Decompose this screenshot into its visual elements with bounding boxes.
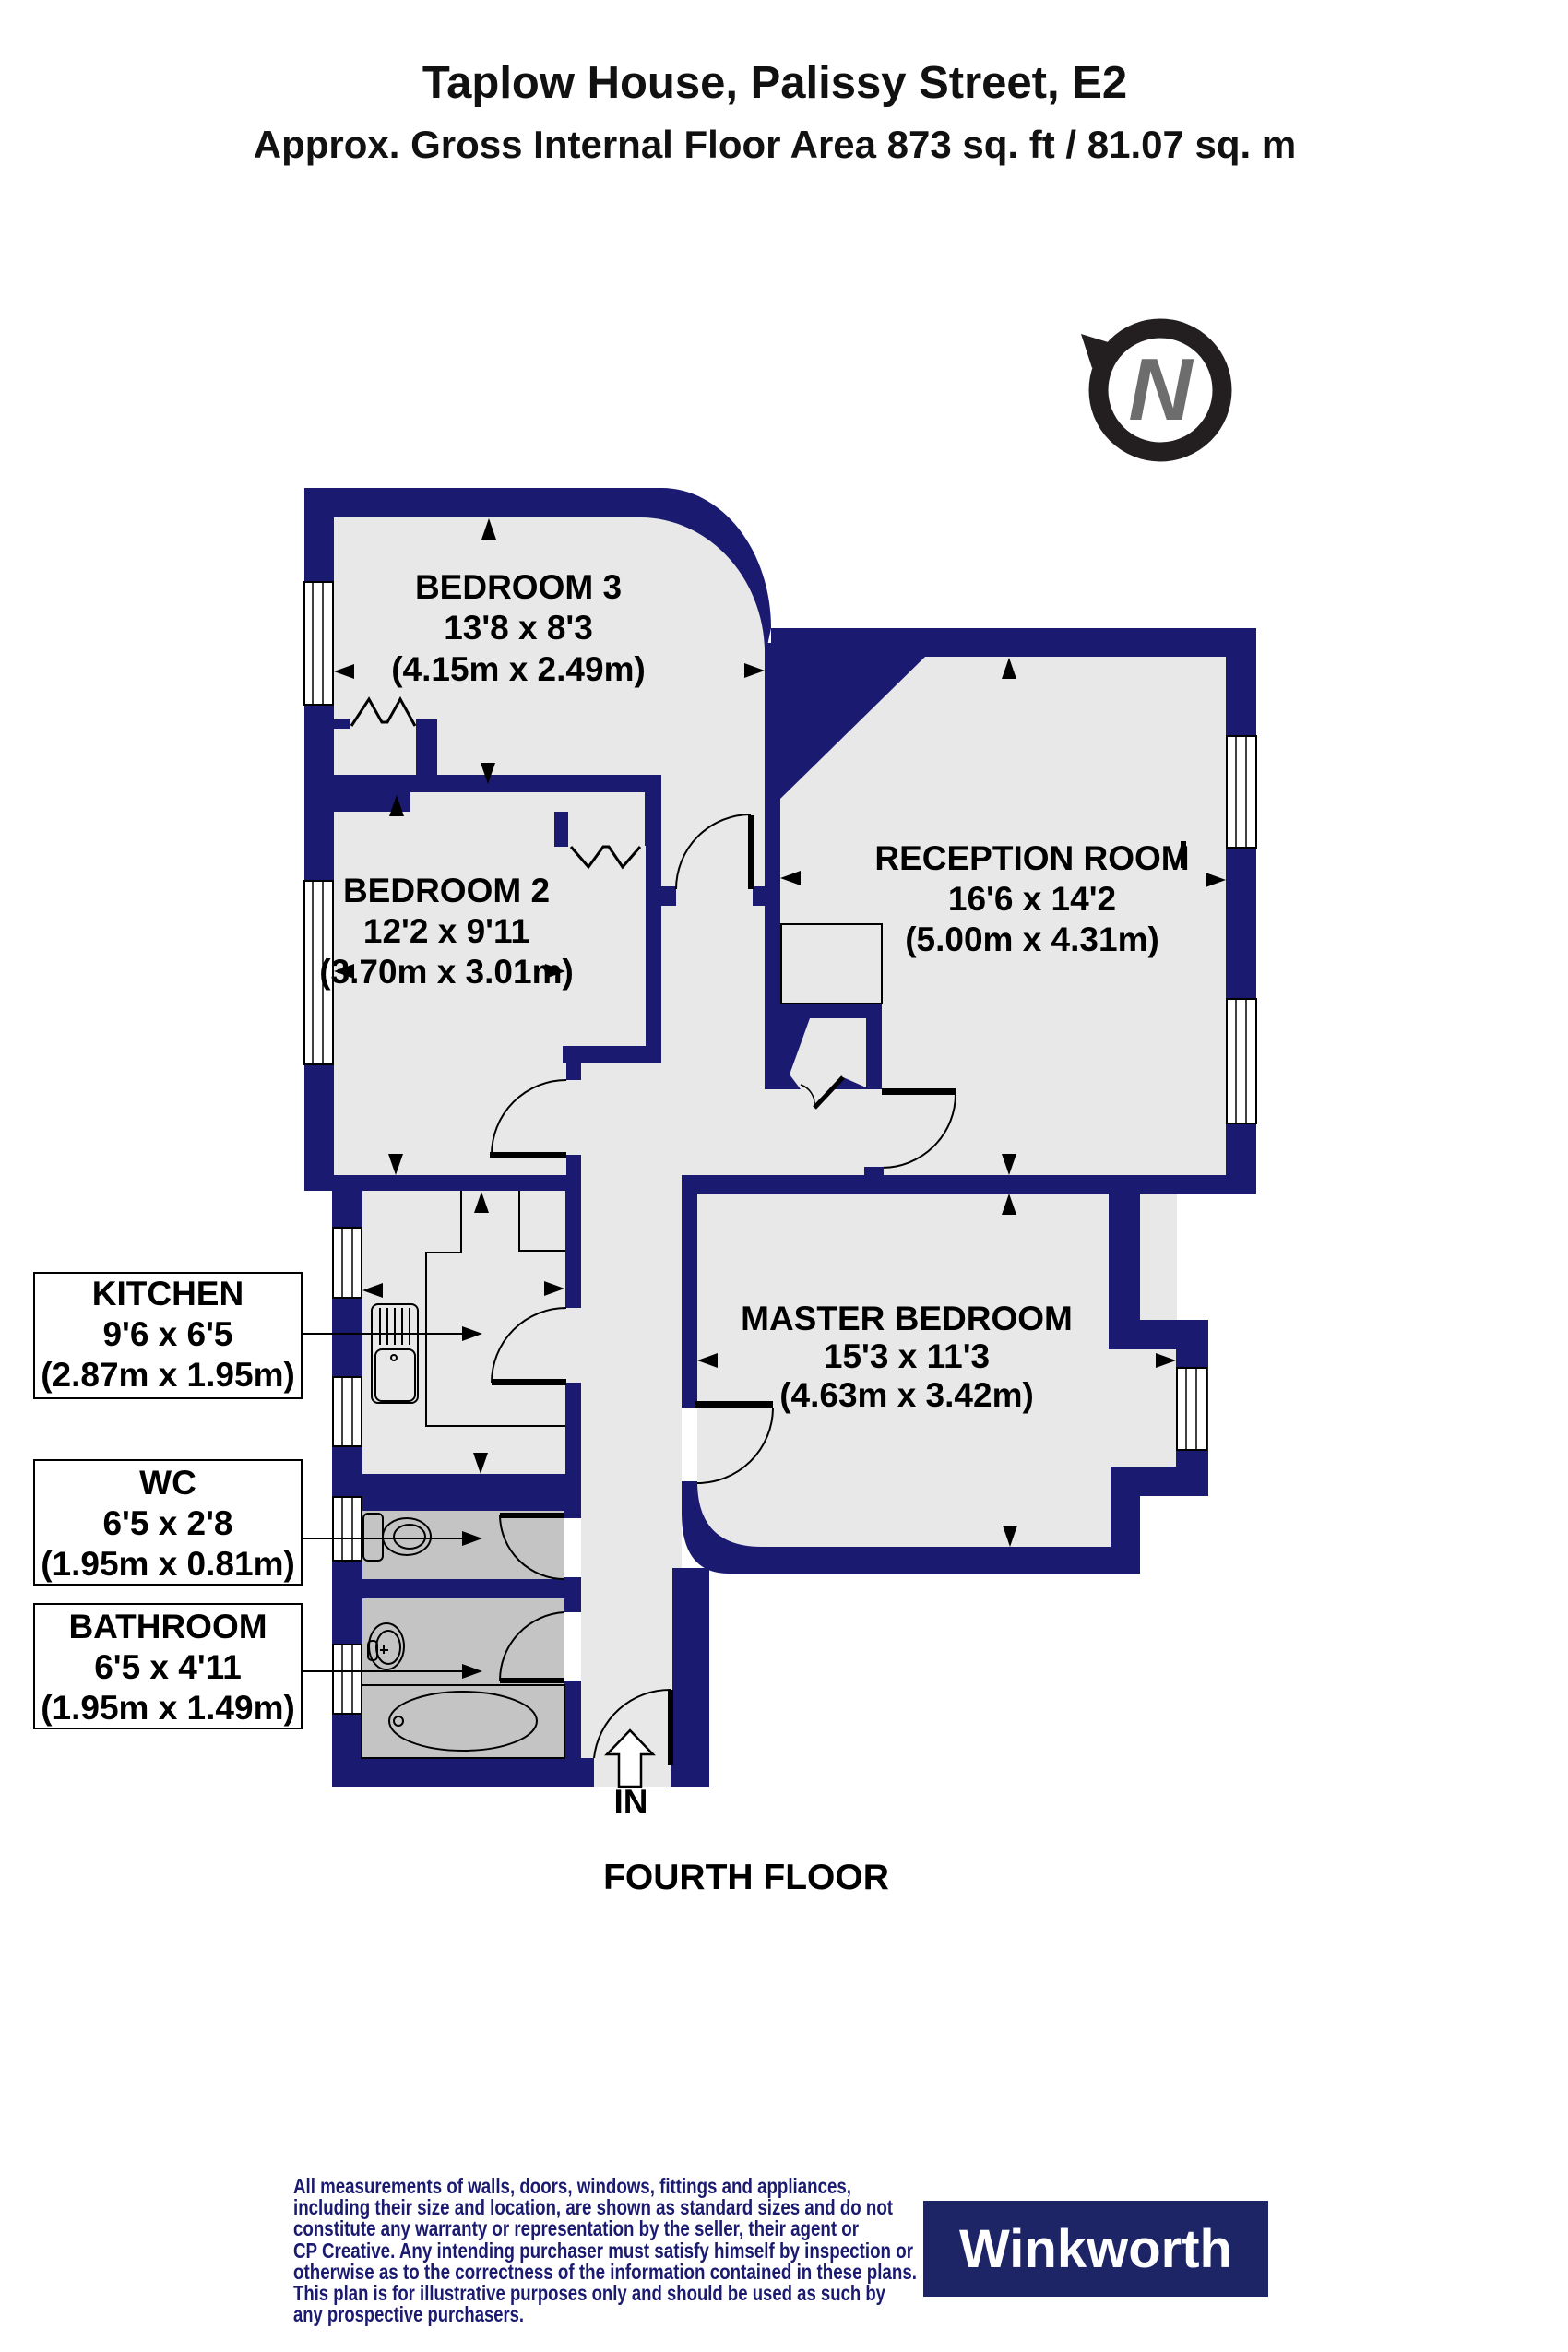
svg-text:Approx. Gross Internal Floor A: Approx. Gross Internal Floor Area 873 sq…: [254, 123, 1296, 166]
svg-text:Winkworth: Winkworth: [959, 2219, 1232, 2279]
svg-text:IN: IN: [614, 1783, 648, 1821]
svg-text:13'8 x 8'3: 13'8 x 8'3: [444, 609, 593, 647]
svg-text:WC: WC: [139, 1464, 196, 1502]
svg-text:12'2 x 9'11: 12'2 x 9'11: [363, 912, 529, 950]
svg-text:BEDROOM 2: BEDROOM 2: [343, 872, 550, 909]
svg-text:Taplow House, Palissy Street,: Taplow House, Palissy Street, E2: [422, 58, 1127, 108]
svg-text:any prospective purchasers.: any prospective purchasers.: [293, 2302, 524, 2326]
svg-text:(4.63m x 3.42m): (4.63m x 3.42m): [779, 1376, 1034, 1414]
svg-text:(2.87m x 1.95m): (2.87m x 1.95m): [41, 1356, 295, 1394]
svg-text:constitute any warranty or rep: constitute any warranty or representatio…: [293, 2216, 859, 2240]
svg-text:16'6 x 14'2: 16'6 x 14'2: [948, 880, 1116, 918]
svg-text:FOURTH FLOOR: FOURTH FLOOR: [603, 1858, 889, 1897]
svg-text:6'5 x 2'8: 6'5 x 2'8: [102, 1504, 232, 1542]
svg-text:BATHROOM: BATHROOM: [68, 1608, 267, 1645]
svg-text:(3.70m x 3.01m): (3.70m x 3.01m): [319, 953, 574, 991]
svg-text:N: N: [1128, 340, 1194, 439]
svg-text:6'5 x 4'11: 6'5 x 4'11: [94, 1648, 242, 1686]
svg-text:(1.95m x 0.81m): (1.95m x 0.81m): [41, 1545, 295, 1583]
svg-text:(1.95m x 1.49m): (1.95m x 1.49m): [41, 1689, 295, 1727]
svg-text:9'6 x 6'5: 9'6 x 6'5: [102, 1315, 232, 1353]
svg-text:KITCHEN: KITCHEN: [92, 1275, 244, 1313]
svg-text:MASTER BEDROOM: MASTER BEDROOM: [741, 1300, 1073, 1337]
svg-text:15'3 x 11'3: 15'3 x 11'3: [824, 1337, 990, 1375]
svg-text:RECEPTION ROOM: RECEPTION ROOM: [874, 839, 1189, 877]
svg-text:(4.15m x 2.49m): (4.15m x 2.49m): [391, 650, 646, 688]
svg-text:(5.00m x 4.31m): (5.00m x 4.31m): [905, 921, 1159, 958]
svg-text:BEDROOM 3: BEDROOM 3: [415, 568, 622, 606]
